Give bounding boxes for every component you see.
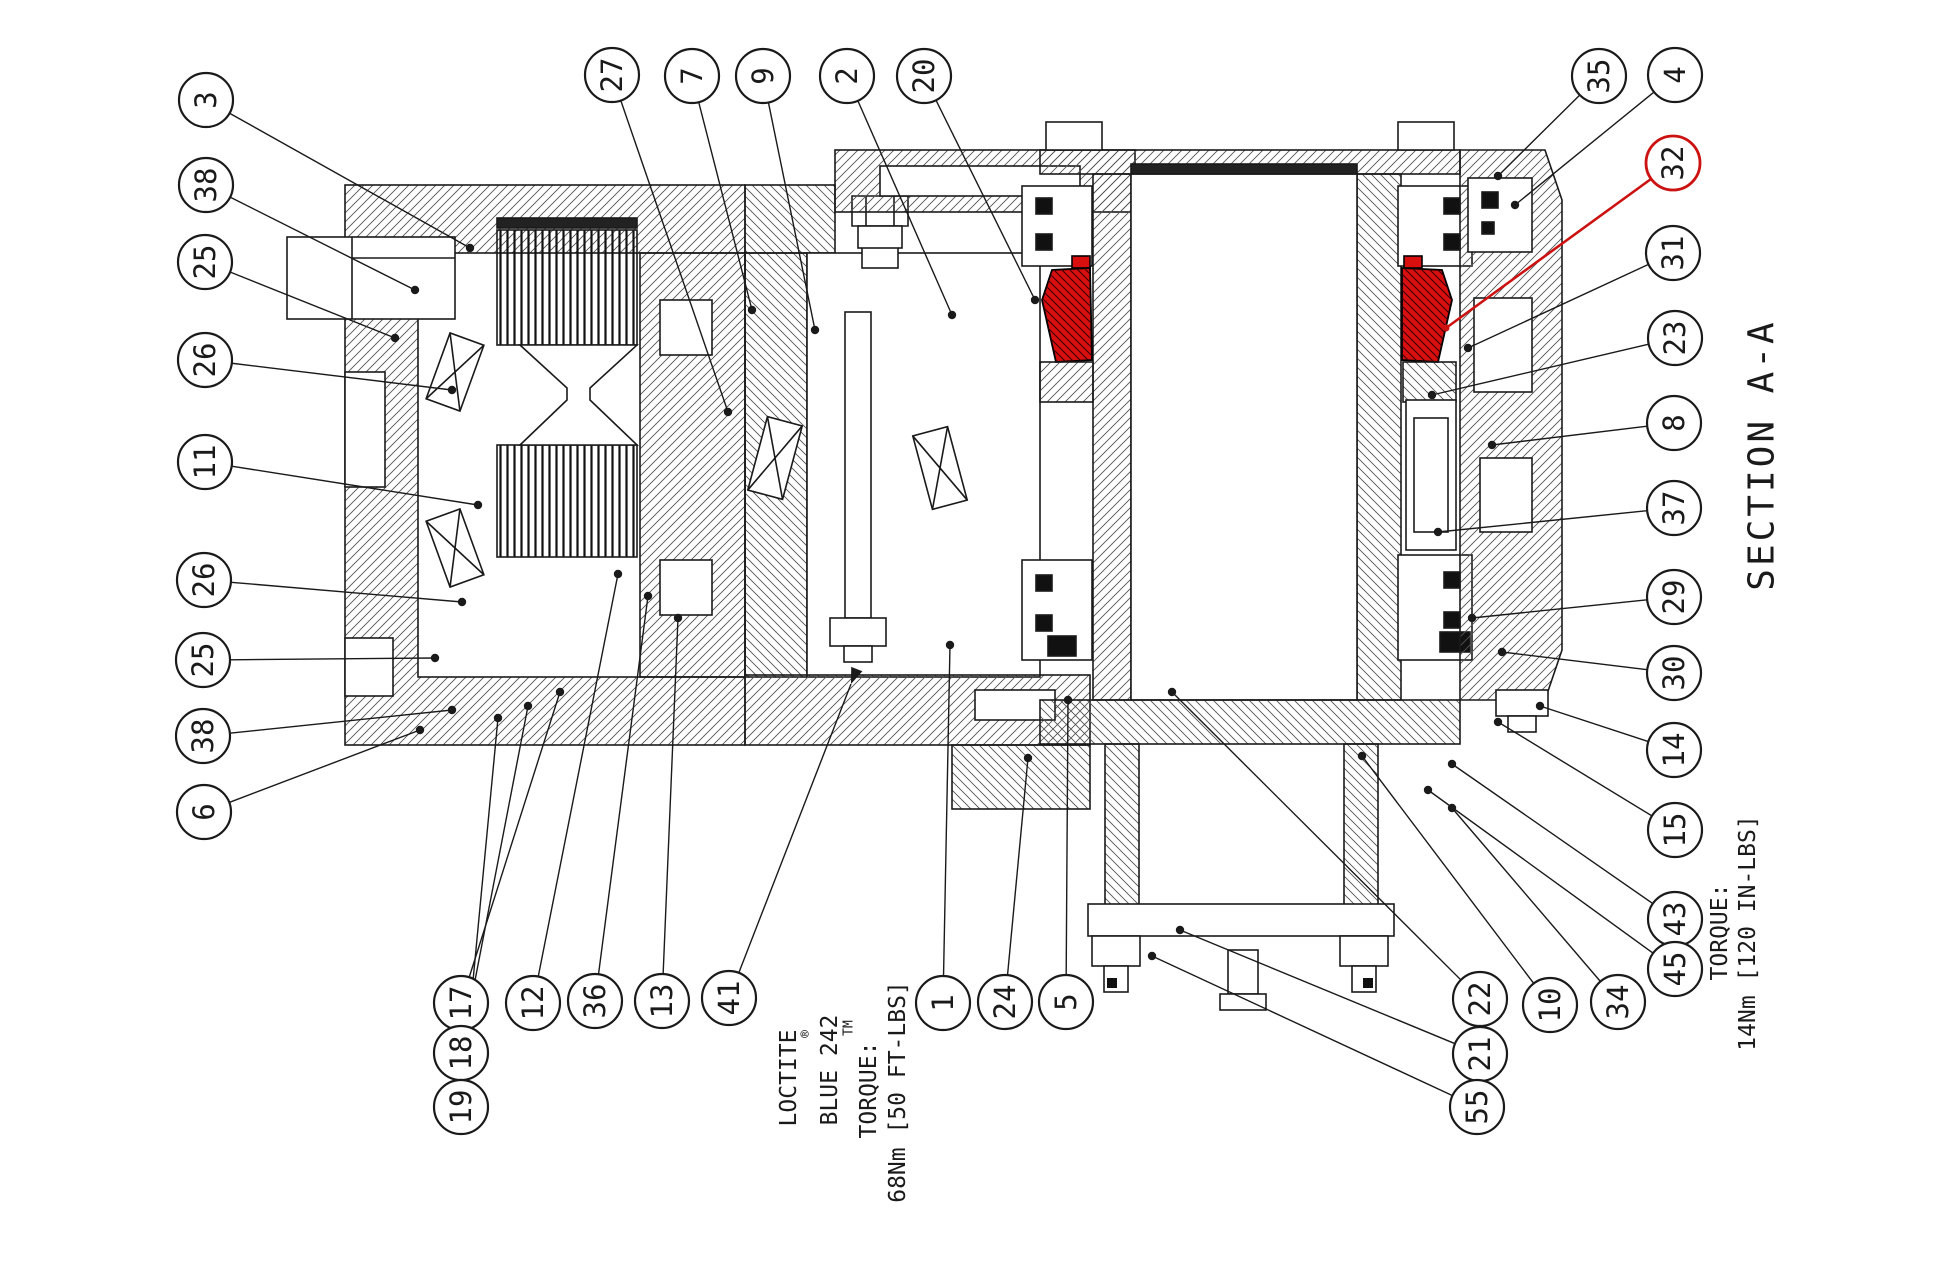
leader-dot bbox=[724, 408, 732, 416]
leader-dot bbox=[1448, 760, 1456, 768]
balloon-circle-23[interactable]: 23 bbox=[1648, 311, 1702, 365]
note-loctite-reg: ® bbox=[799, 1030, 814, 1038]
balloon-number: 27 bbox=[595, 58, 629, 93]
balloon-circle-30[interactable]: 30 bbox=[1647, 646, 1701, 700]
leader-dot bbox=[1148, 952, 1156, 960]
leader-dot bbox=[1434, 528, 1442, 536]
balloon-circle-2[interactable]: 2 bbox=[820, 49, 874, 103]
leader-dot bbox=[1168, 688, 1176, 696]
balloon-number: 12 bbox=[516, 986, 550, 1021]
balloon-number: 45 bbox=[1658, 952, 1692, 987]
balloon-number: 37 bbox=[1657, 491, 1691, 526]
leader-dot bbox=[1536, 702, 1544, 710]
balloon-circle-41[interactable]: 41 bbox=[702, 971, 756, 1025]
balloon-circle-5[interactable]: 5 bbox=[1039, 975, 1093, 1029]
balloon-circle-38[interactable]: 38 bbox=[179, 158, 233, 212]
leader-dot bbox=[674, 614, 682, 622]
balloon-number: 11 bbox=[188, 445, 222, 480]
leader-dot bbox=[1468, 614, 1476, 622]
balloon-circle-11[interactable]: 11 bbox=[178, 435, 232, 489]
spline-pack-top bbox=[497, 218, 637, 345]
leader-dot bbox=[1511, 201, 1519, 209]
output-shaft-legs bbox=[1088, 744, 1394, 1010]
balloon-circle-9[interactable]: 9 bbox=[736, 49, 790, 103]
balloon-number: 25 bbox=[186, 643, 220, 678]
section-drawing-svg: 3382526112625386277922035432312383729301… bbox=[0, 0, 1952, 1284]
leader-dot bbox=[448, 706, 456, 714]
balloon-circle-22[interactable]: 22 bbox=[1453, 972, 1507, 1026]
balloon-circle-26[interactable]: 26 bbox=[177, 553, 231, 607]
leader-dot bbox=[411, 286, 419, 294]
balloon-number: 38 bbox=[186, 719, 220, 754]
leader-dot bbox=[811, 326, 819, 334]
balloon-circle-31[interactable]: 31 bbox=[1646, 226, 1700, 280]
balloon-number: 7 bbox=[675, 67, 709, 84]
balloon-circle-3[interactable]: 3 bbox=[179, 73, 233, 127]
balloon-circle-6[interactable]: 6 bbox=[177, 785, 231, 839]
leader-dot bbox=[644, 592, 652, 600]
leader-dot bbox=[1064, 696, 1072, 704]
balloon-circle-15[interactable]: 15 bbox=[1648, 803, 1702, 857]
balloon-circle-37[interactable]: 37 bbox=[1647, 481, 1701, 535]
input-flange-block bbox=[287, 237, 455, 319]
balloon-number: 5 bbox=[1049, 993, 1083, 1010]
hub-bore bbox=[1131, 174, 1357, 700]
balloon-number: 26 bbox=[188, 343, 222, 378]
balloon-circle-45[interactable]: 45 bbox=[1648, 942, 1702, 996]
lower-bearing-left bbox=[1022, 560, 1092, 660]
leader-dot bbox=[1494, 172, 1502, 180]
balloon-number: 17 bbox=[444, 986, 478, 1021]
balloon-circle-55[interactable]: 55 bbox=[1450, 1080, 1504, 1134]
balloon-circle-19[interactable]: 19 bbox=[434, 1080, 488, 1134]
note-loctite-tm: TM bbox=[842, 1020, 857, 1036]
balloon-number: 38 bbox=[189, 168, 223, 203]
balloon-circle-20[interactable]: 20 bbox=[897, 49, 951, 103]
section-title: SECTION A-A bbox=[1742, 319, 1783, 590]
balloon-number: 22 bbox=[1463, 982, 1497, 1017]
balloon-number: 30 bbox=[1657, 656, 1691, 691]
note-loctite-line2: BLUE 242 bbox=[817, 1015, 843, 1126]
balloon-circle-35[interactable]: 35 bbox=[1572, 49, 1626, 103]
balloon-circle-34[interactable]: 34 bbox=[1591, 975, 1645, 1029]
balloon-circle-1[interactable]: 1 bbox=[916, 976, 970, 1030]
leader-dot bbox=[946, 641, 954, 649]
balloon-45[interactable] bbox=[1424, 786, 1653, 953]
balloon-number: 19 bbox=[444, 1090, 478, 1125]
leader-dot bbox=[1176, 926, 1184, 934]
leader-dot bbox=[431, 654, 439, 662]
balloon-circle-25[interactable]: 25 bbox=[178, 235, 232, 289]
balloon-circle-4[interactable]: 4 bbox=[1648, 48, 1702, 102]
leader-dot bbox=[466, 244, 474, 252]
bottom-center-bolt bbox=[1220, 950, 1266, 1010]
highlighted-bearing-right[interactable] bbox=[1402, 256, 1452, 362]
balloon-number: 6 bbox=[187, 803, 221, 820]
note-torque-left-label: TORQUE: bbox=[856, 1042, 882, 1139]
balloon-number: 26 bbox=[187, 563, 221, 598]
highlighted-bearing-left[interactable] bbox=[1042, 256, 1092, 362]
note-loctite-line1: LOCTITE bbox=[776, 1030, 802, 1127]
housing-notch bbox=[345, 372, 385, 487]
balloon-circle-24[interactable]: 24 bbox=[978, 975, 1032, 1029]
leader-dot bbox=[1428, 391, 1436, 399]
balloon-number: 4 bbox=[1658, 66, 1692, 83]
balloon-number: 15 bbox=[1658, 813, 1692, 848]
leader-dot bbox=[524, 702, 532, 710]
leader-dot bbox=[748, 306, 756, 314]
note-torque-right-label: TORQUE: bbox=[1707, 884, 1733, 981]
balloon-circle-38[interactable]: 38 bbox=[176, 709, 230, 763]
leader-dot bbox=[1424, 786, 1432, 794]
balloon-number: 20 bbox=[907, 59, 941, 94]
balloon-43[interactable] bbox=[1448, 760, 1653, 904]
upper-bearing-left bbox=[1022, 186, 1092, 266]
leader-dot bbox=[391, 334, 399, 342]
leader-dot bbox=[1464, 344, 1472, 352]
balloon-number: 35 bbox=[1582, 59, 1616, 94]
leader-dot bbox=[416, 726, 424, 734]
balloon-circle-8[interactable]: 8 bbox=[1647, 396, 1701, 450]
balloon-number: 18 bbox=[444, 1036, 478, 1071]
carrier-section bbox=[745, 185, 1090, 809]
balloon-number: 10 bbox=[1533, 988, 1567, 1023]
balloon-34[interactable] bbox=[1448, 804, 1601, 982]
balloon-number: 25 bbox=[188, 245, 222, 280]
balloon-number: 29 bbox=[1657, 580, 1691, 615]
leader-dot bbox=[1024, 754, 1032, 762]
balloon-circle-10[interactable]: 10 bbox=[1523, 978, 1577, 1032]
balloon-number: 1 bbox=[926, 994, 960, 1011]
balloon-circle-32[interactable]: 32 bbox=[1646, 136, 1700, 190]
leader-dot bbox=[1031, 296, 1039, 304]
leader-dot bbox=[614, 570, 622, 578]
balloon-circle-12[interactable]: 12 bbox=[506, 976, 560, 1030]
ring-gear-column bbox=[640, 253, 745, 677]
balloon-number: 9 bbox=[746, 67, 780, 84]
balloon-circle-18[interactable]: 18 bbox=[434, 1026, 488, 1080]
balloon-circle-13[interactable]: 13 bbox=[635, 974, 689, 1028]
balloon-number: 13 bbox=[645, 984, 679, 1019]
balloon-circle-29[interactable]: 29 bbox=[1647, 570, 1701, 624]
balloon-number: 32 bbox=[1656, 146, 1690, 181]
balloon-circle-26[interactable]: 26 bbox=[178, 333, 232, 387]
balloon-number: 24 bbox=[988, 985, 1022, 1020]
note-torque-left-value: 68Nm [50 FT-LBS] bbox=[885, 981, 911, 1203]
balloon-circle-7[interactable]: 7 bbox=[665, 49, 719, 103]
balloon-number: 3 bbox=[189, 91, 223, 108]
leader-dot bbox=[948, 311, 956, 319]
spline-pack-bottom bbox=[497, 445, 637, 557]
gear-drive-cross-section bbox=[287, 122, 1562, 1010]
leader-dot bbox=[1448, 804, 1456, 812]
drawing-canvas: 3382526112625386277922035432312383729301… bbox=[0, 0, 1952, 1284]
balloon-circle-14[interactable]: 14 bbox=[1647, 723, 1701, 777]
balloon-number: 14 bbox=[1657, 733, 1691, 768]
leader-dot bbox=[458, 598, 466, 606]
balloon-circle-27[interactable]: 27 bbox=[585, 48, 639, 102]
balloon-circle-21[interactable]: 21 bbox=[1453, 1027, 1507, 1081]
balloon-circle-36[interactable]: 36 bbox=[568, 974, 622, 1028]
balloon-21[interactable] bbox=[1176, 926, 1455, 1044]
bottom-plate bbox=[1088, 904, 1394, 936]
housing-foot-block bbox=[345, 638, 393, 696]
hub-assembly bbox=[1040, 122, 1460, 744]
leader-dot bbox=[1498, 648, 1506, 656]
balloon-number: 21 bbox=[1463, 1037, 1497, 1072]
leader-dot bbox=[1443, 325, 1450, 332]
balloon-number: 55 bbox=[1460, 1090, 1494, 1125]
leader-dot bbox=[494, 714, 502, 722]
leader-dot bbox=[474, 501, 482, 509]
bearing-web-left bbox=[1040, 362, 1093, 402]
balloon-circle-17[interactable]: 17 bbox=[434, 976, 488, 1030]
leader-dot bbox=[448, 386, 456, 394]
balloon-number: 23 bbox=[1658, 321, 1692, 356]
balloon-number: 36 bbox=[578, 984, 612, 1019]
balloon-number: 34 bbox=[1601, 985, 1635, 1020]
leader-dot bbox=[1488, 441, 1496, 449]
balloon-number: 43 bbox=[1658, 902, 1692, 937]
balloon-number: 8 bbox=[1657, 414, 1691, 431]
note-torque-right-value: 14Nm [120 IN-LBS] bbox=[1735, 815, 1761, 1050]
balloon-number: 31 bbox=[1656, 236, 1690, 271]
leader-dot bbox=[556, 688, 564, 696]
leader-dot bbox=[1494, 718, 1502, 726]
leader-dot bbox=[1358, 752, 1366, 760]
balloon-circle-25[interactable]: 25 bbox=[176, 633, 230, 687]
balloon-number: 2 bbox=[830, 67, 864, 84]
balloon-circle-43[interactable]: 43 bbox=[1648, 892, 1702, 946]
balloon-number: 41 bbox=[712, 981, 746, 1016]
balloon-14[interactable] bbox=[1536, 702, 1649, 742]
